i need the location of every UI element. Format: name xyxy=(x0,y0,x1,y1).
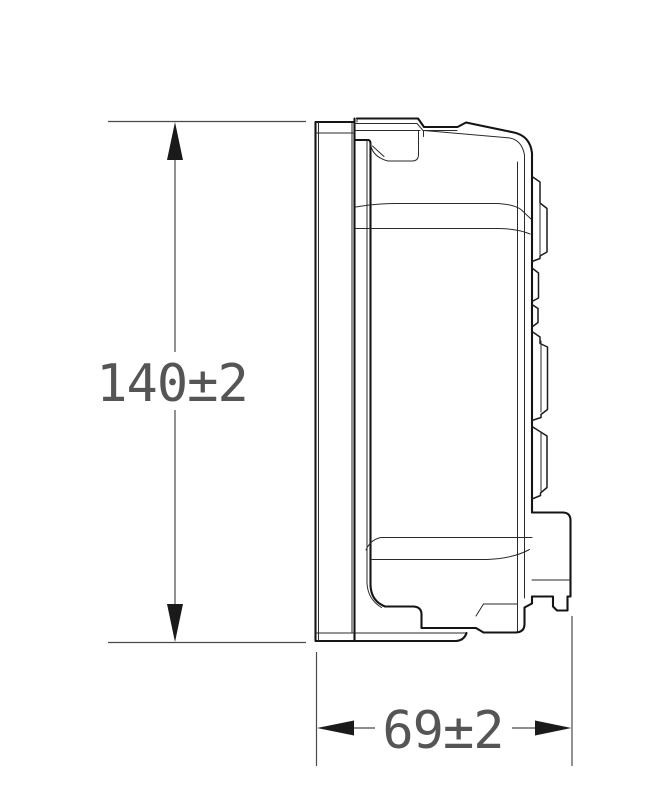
mount-block-outline xyxy=(532,513,571,611)
bottom-mount-block xyxy=(532,513,571,611)
bottom-right-foot-edge xyxy=(476,604,517,616)
top-recess xyxy=(371,131,419,161)
side-clips xyxy=(532,177,548,500)
panel-inner-lines xyxy=(316,122,467,641)
snap-rail-b xyxy=(532,427,547,500)
technical-drawing-canvas: 140±2 69±2 xyxy=(0,0,649,789)
drawing-sheet: 140±2 69±2 xyxy=(0,0,649,789)
snap-rail-a xyxy=(532,332,548,421)
depth-arrow-left xyxy=(317,721,354,736)
flange-outline xyxy=(355,140,532,633)
front-panel xyxy=(316,119,467,642)
height-arrow-down xyxy=(167,604,183,642)
height-dimension-label: 140±2 xyxy=(96,354,248,414)
height-dimension: 140±2 xyxy=(96,122,306,643)
body-top-and-right-wall xyxy=(357,119,532,513)
depth-dimension-label: 69±2 xyxy=(382,701,503,761)
inner-top-edge xyxy=(424,131,525,599)
height-arrow-up xyxy=(167,122,183,160)
panel-outline xyxy=(316,119,467,642)
body-outline xyxy=(355,119,532,633)
lower-contour-lines xyxy=(366,538,532,560)
upper-contour-lines xyxy=(356,204,532,235)
depth-arrow-right xyxy=(535,721,572,736)
